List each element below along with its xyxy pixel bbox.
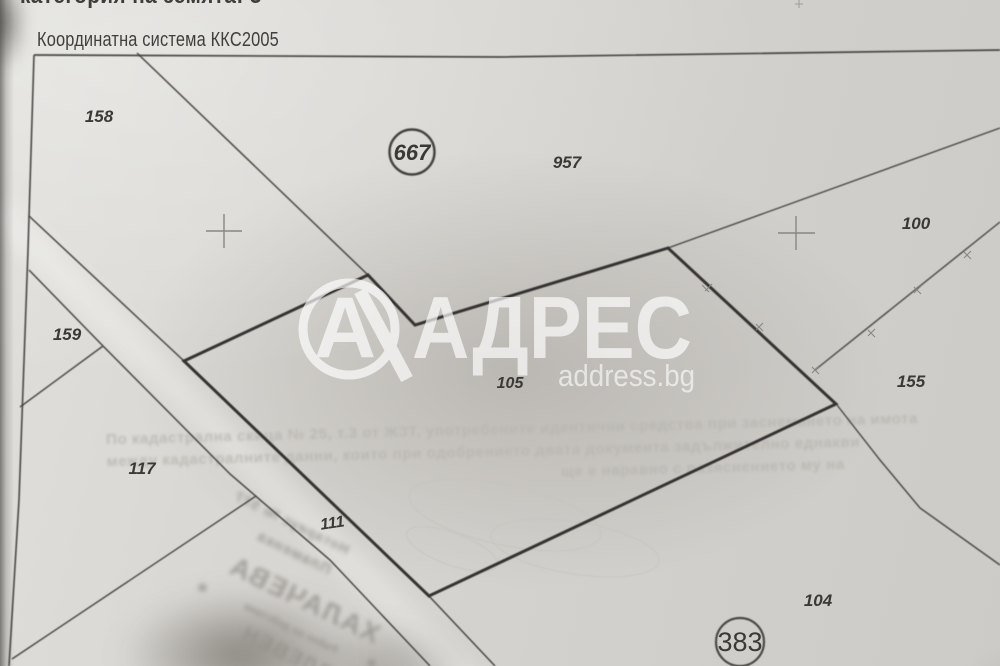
- svg-text:383: 383: [717, 627, 762, 657]
- svg-text:957: 957: [553, 153, 583, 172]
- svg-text:104: 104: [804, 591, 833, 610]
- svg-text:✳: ✳: [362, 654, 380, 666]
- svg-text:111: 111: [319, 513, 346, 533]
- svg-text:105: 105: [497, 375, 525, 392]
- svg-text:address.bg: address.bg: [558, 358, 695, 393]
- svg-text:100: 100: [902, 214, 931, 233]
- svg-text:667: 667: [394, 140, 432, 165]
- svg-text:155: 155: [897, 372, 926, 391]
- svg-text:117: 117: [128, 459, 157, 478]
- svg-text:✳: ✳: [193, 578, 211, 598]
- svg-text:159: 159: [53, 325, 82, 344]
- svg-text:158: 158: [85, 107, 114, 126]
